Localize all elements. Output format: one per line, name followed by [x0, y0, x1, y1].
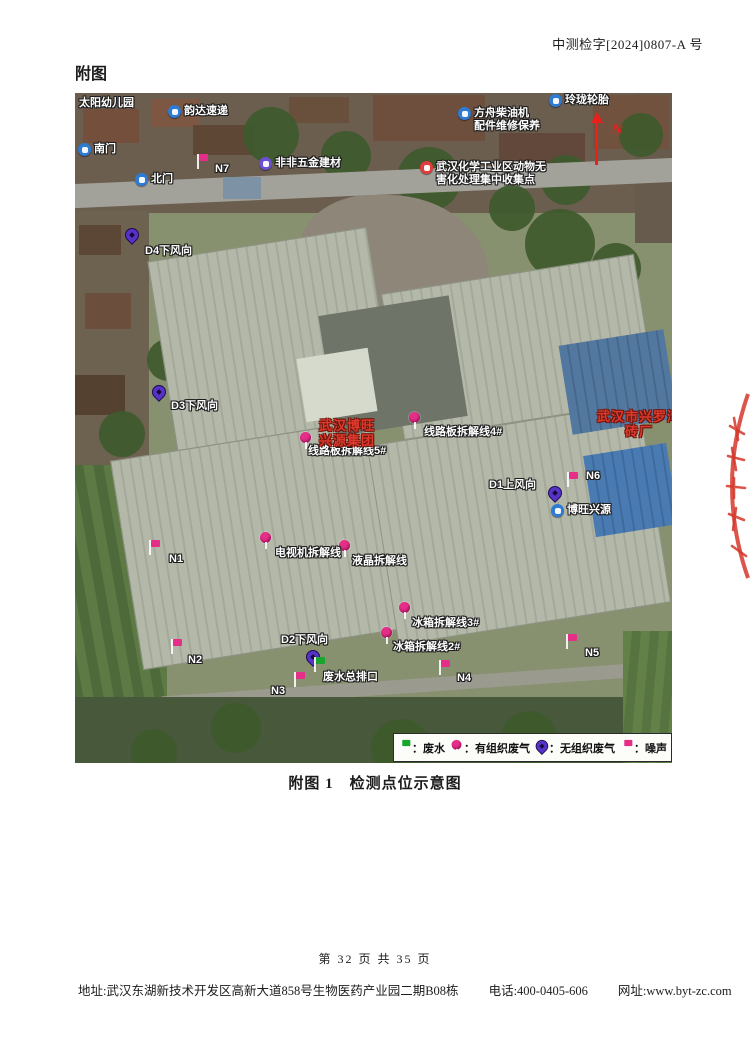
poi-label-line: 方舟柴油机 [474, 107, 540, 120]
legend-item: ：有组织废气 [450, 739, 530, 756]
red-poi-icon [420, 161, 433, 174]
organized-gas-marker [259, 531, 272, 549]
footer-contact-row: 地址:武汉东湖新技术开发区高新大道858号生物医药产业园二期B08栋 电话:40… [78, 980, 708, 999]
map-terrain-shape [296, 348, 377, 422]
pin-stem [265, 542, 267, 549]
blue-poi-icon [78, 143, 91, 156]
map-terrain-shape [79, 225, 121, 255]
blue-poi-icon [135, 173, 148, 186]
site-name-line: 砖厂 [597, 424, 672, 439]
organized-gas-label: 电视机拆解线 [275, 547, 341, 560]
poi-label-line: 韵达速递 [184, 105, 228, 118]
pin-stem [456, 749, 458, 755]
site-name-line: 武汉博旺 [319, 418, 375, 433]
map-terrain-shape [85, 293, 131, 329]
unorganized-gas-label: D3下风向 [171, 400, 218, 413]
poi-marker: 武汉化学工业区动物无害化处理集中收集点 [420, 161, 546, 187]
purple-poi-icon [259, 157, 272, 170]
organized-gas-label: 冰箱拆解线2# [393, 641, 460, 654]
poi-marker: 博旺兴源 [551, 504, 611, 517]
poi-marker: 方舟柴油机配件维修保养 [458, 107, 540, 133]
poi-label: 武汉化学工业区动物无害化处理集中收集点 [436, 161, 546, 187]
poi-label: 太阳幼儿园 [79, 97, 134, 110]
poi-label: 方舟柴油机配件维修保养 [474, 107, 540, 133]
organized-gas-label: 线路板拆解线4# [424, 426, 502, 439]
poi-label: 北门 [151, 173, 173, 186]
blue-poi-icon [458, 107, 471, 120]
legend-item: ：噪声 [620, 739, 667, 756]
pin-stem [344, 550, 346, 557]
flag-cloth [199, 154, 208, 161]
map-terrain-shape [619, 113, 663, 157]
noise-flag-marker [437, 659, 450, 677]
noise-flag-marker [292, 671, 305, 689]
poi-marker: 北门 [135, 173, 173, 186]
purple-pin-icon [125, 228, 138, 245]
site-map-image: N 太阳幼儿园韵达速递南门北门非非五金建材方舟柴油机配件维修保养玲珑轮胎武汉化学… [75, 93, 672, 763]
poi-label-line: 武汉化学工业区动物无 [436, 161, 546, 174]
pink-pin-icon [408, 412, 421, 429]
poi-label-line: 博旺兴源 [567, 504, 611, 517]
noise-flag-marker [564, 633, 577, 651]
organized-gas-label: 液晶拆解线 [352, 555, 407, 568]
legend-label: ：无组织废气 [549, 740, 615, 756]
noise-point-label: N7 [215, 163, 229, 176]
poi-marker: 南门 [78, 143, 116, 156]
pink-pin-icon [451, 740, 463, 755]
blue-poi-icon [551, 504, 564, 517]
organized-gas-marker [398, 601, 411, 619]
flag-cloth [296, 672, 305, 679]
poi-label: 南门 [94, 143, 116, 156]
noise-flag-marker [565, 471, 578, 489]
organized-gas-marker [408, 411, 421, 429]
unorganized-gas-label: D4下风向 [145, 245, 192, 258]
pink-flag-icon [195, 154, 208, 171]
pink-flag-icon [147, 540, 160, 557]
pink-flag-icon [292, 672, 305, 689]
noise-point-label: N6 [586, 470, 600, 483]
noise-point-label: N1 [169, 553, 183, 566]
pink-flag-icon [564, 634, 577, 651]
pink-pin-icon [398, 602, 411, 619]
flag-cloth [569, 472, 578, 479]
site-name-label: 武汉博旺兴源集团 [319, 418, 375, 448]
legend-label: ：有组织废气 [464, 740, 530, 756]
footer-address: 地址:武汉东湖新技术开发区高新大道858号生物医药产业园二期B08栋 [78, 980, 459, 999]
legend-item: ：废水 [398, 739, 445, 756]
pink-flag-icon [437, 660, 450, 677]
map-terrain-shape [99, 411, 145, 457]
figure-caption: 附图 1 检测点位示意图 [0, 772, 750, 793]
flag-cloth [568, 634, 577, 641]
unorganized-gas-marker [548, 485, 561, 503]
organized-gas-marker [380, 626, 393, 644]
purple-pin-icon [548, 486, 561, 503]
organized-gas-label: 冰箱拆解线3# [412, 617, 479, 630]
section-title: 附图 [75, 60, 107, 84]
poi-label: 博旺兴源 [567, 504, 611, 517]
unorganized-gas-marker [125, 227, 138, 245]
footer-phone: 电话:400-0405-606 [489, 980, 588, 999]
site-name-line: 兴源集团 [319, 433, 375, 448]
green-flag-icon [399, 740, 411, 755]
map-terrain-shape [243, 107, 299, 163]
pink-flag-icon [169, 639, 182, 656]
flag-cloth [316, 657, 325, 664]
poi-label-line: 北门 [151, 173, 173, 186]
legend-item: ：无组织废气 [535, 739, 615, 756]
noise-point-label: N3 [271, 685, 285, 698]
poi-marker: 非非五金建材 [259, 157, 341, 170]
poi-marker: 韵达速递 [168, 105, 228, 118]
blue-poi-icon [549, 94, 562, 107]
poi-label-line: 非非五金建材 [275, 157, 341, 170]
map-terrain-shape [211, 703, 261, 753]
flag-cloth [402, 740, 410, 746]
map-terrain-shape [489, 185, 535, 231]
map-terrain-shape [289, 97, 349, 123]
map-legend: ：废水：有组织废气：无组织废气：噪声 [393, 733, 672, 762]
pink-flag-icon [621, 740, 633, 755]
pink-flag-icon [565, 472, 578, 489]
noise-point-label: N4 [457, 672, 471, 685]
unorganized-gas-label: D2下风向 [281, 634, 328, 647]
unorganized-gas-marker [152, 384, 165, 402]
poi-label-line: 南门 [94, 143, 116, 156]
blue-poi-icon [168, 105, 181, 118]
poi-marker: 太阳幼儿园 [79, 97, 134, 110]
flag-cloth [441, 660, 450, 667]
footer-website: 网址:www.byt-zc.com [618, 980, 732, 999]
legend-label: ：废水 [412, 740, 445, 756]
map-terrain-shape [75, 375, 125, 415]
flag-cloth [173, 639, 182, 646]
site-name-line: 武汉市兴罗湾 [597, 409, 672, 424]
pin-stem [414, 422, 416, 429]
pin-stem [305, 442, 307, 449]
page-number: 第 32 页 共 35 页 [0, 950, 750, 967]
noise-flag-marker [195, 153, 208, 171]
poi-label-line: 害化处理集中收集点 [436, 174, 546, 187]
noise-flag-marker [147, 539, 160, 557]
purple-pin-icon [152, 385, 165, 402]
document-number: 中测检字[2024]0807-A 号 [552, 34, 703, 53]
poi-label: 韵达速递 [184, 105, 228, 118]
map-terrain-shape [223, 177, 261, 199]
pink-pin-icon [259, 532, 272, 549]
map-terrain-shape [83, 109, 139, 143]
legend-label: ：噪声 [634, 740, 667, 756]
unorganized-gas-label: D1上风向 [489, 479, 536, 492]
poi-label: 非非五金建材 [275, 157, 341, 170]
red-seal-stamp [714, 388, 750, 584]
poi-label-line: 太阳幼儿园 [79, 97, 134, 110]
poi-label-line: 配件维修保养 [474, 120, 540, 133]
wastewater-label: 废水总排口 [323, 671, 378, 684]
site-name-label: 武汉市兴罗湾砖厂 [597, 409, 672, 439]
pink-pin-icon [380, 627, 393, 644]
flag-cloth [624, 740, 632, 746]
noise-point-label: N5 [585, 647, 599, 660]
noise-point-label: N2 [188, 654, 202, 667]
pin-stem [386, 637, 388, 644]
purple-pin-icon [536, 740, 548, 755]
pin-stem [404, 612, 406, 619]
north-arrow-icon [595, 117, 598, 165]
flag-cloth [151, 540, 160, 547]
noise-flag-marker [169, 638, 182, 656]
map-terrain-shape [583, 443, 672, 537]
